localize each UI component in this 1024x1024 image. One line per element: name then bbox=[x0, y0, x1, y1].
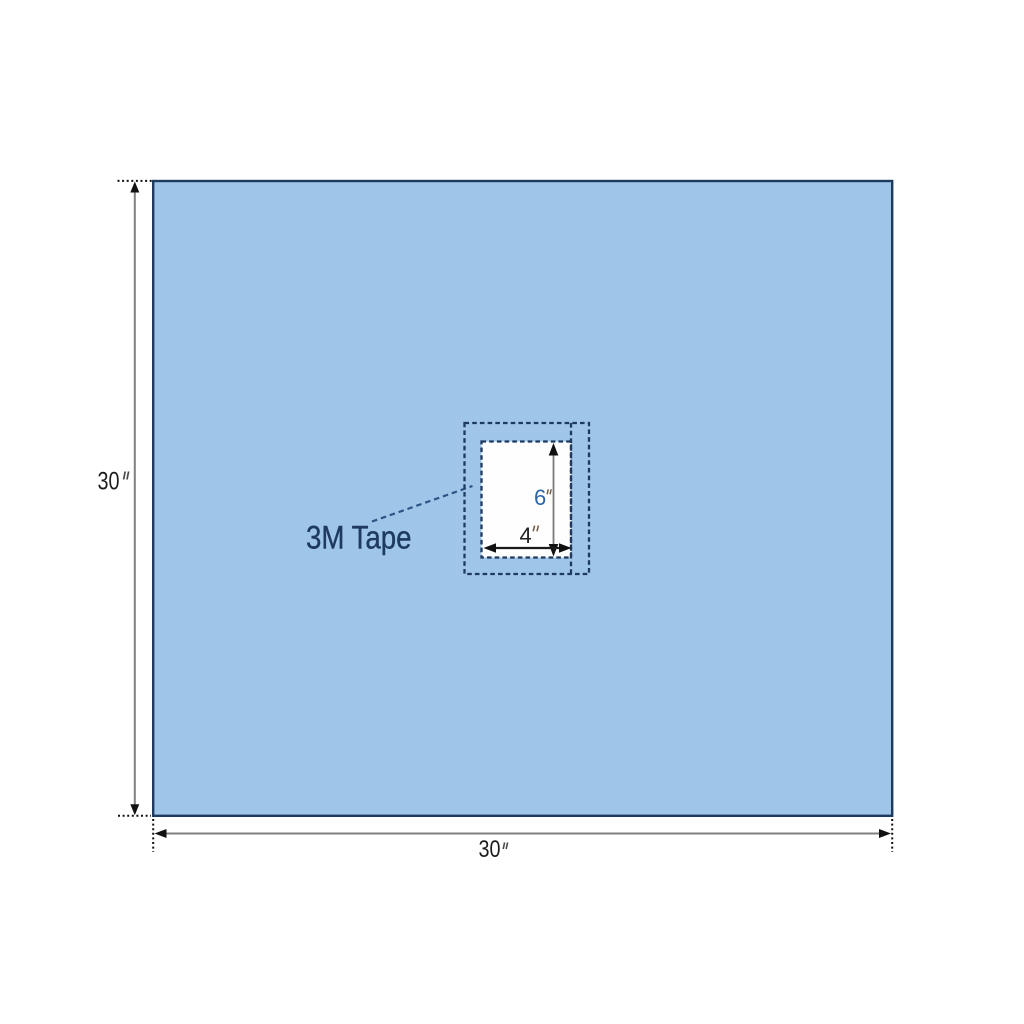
svg-text:3M Tape: 3M Tape bbox=[306, 520, 412, 556]
svg-text:6: 6 bbox=[534, 485, 546, 510]
svg-text:4: 4 bbox=[520, 523, 532, 548]
svg-text:30: 30 bbox=[479, 836, 501, 863]
svg-text:30: 30 bbox=[98, 467, 120, 495]
